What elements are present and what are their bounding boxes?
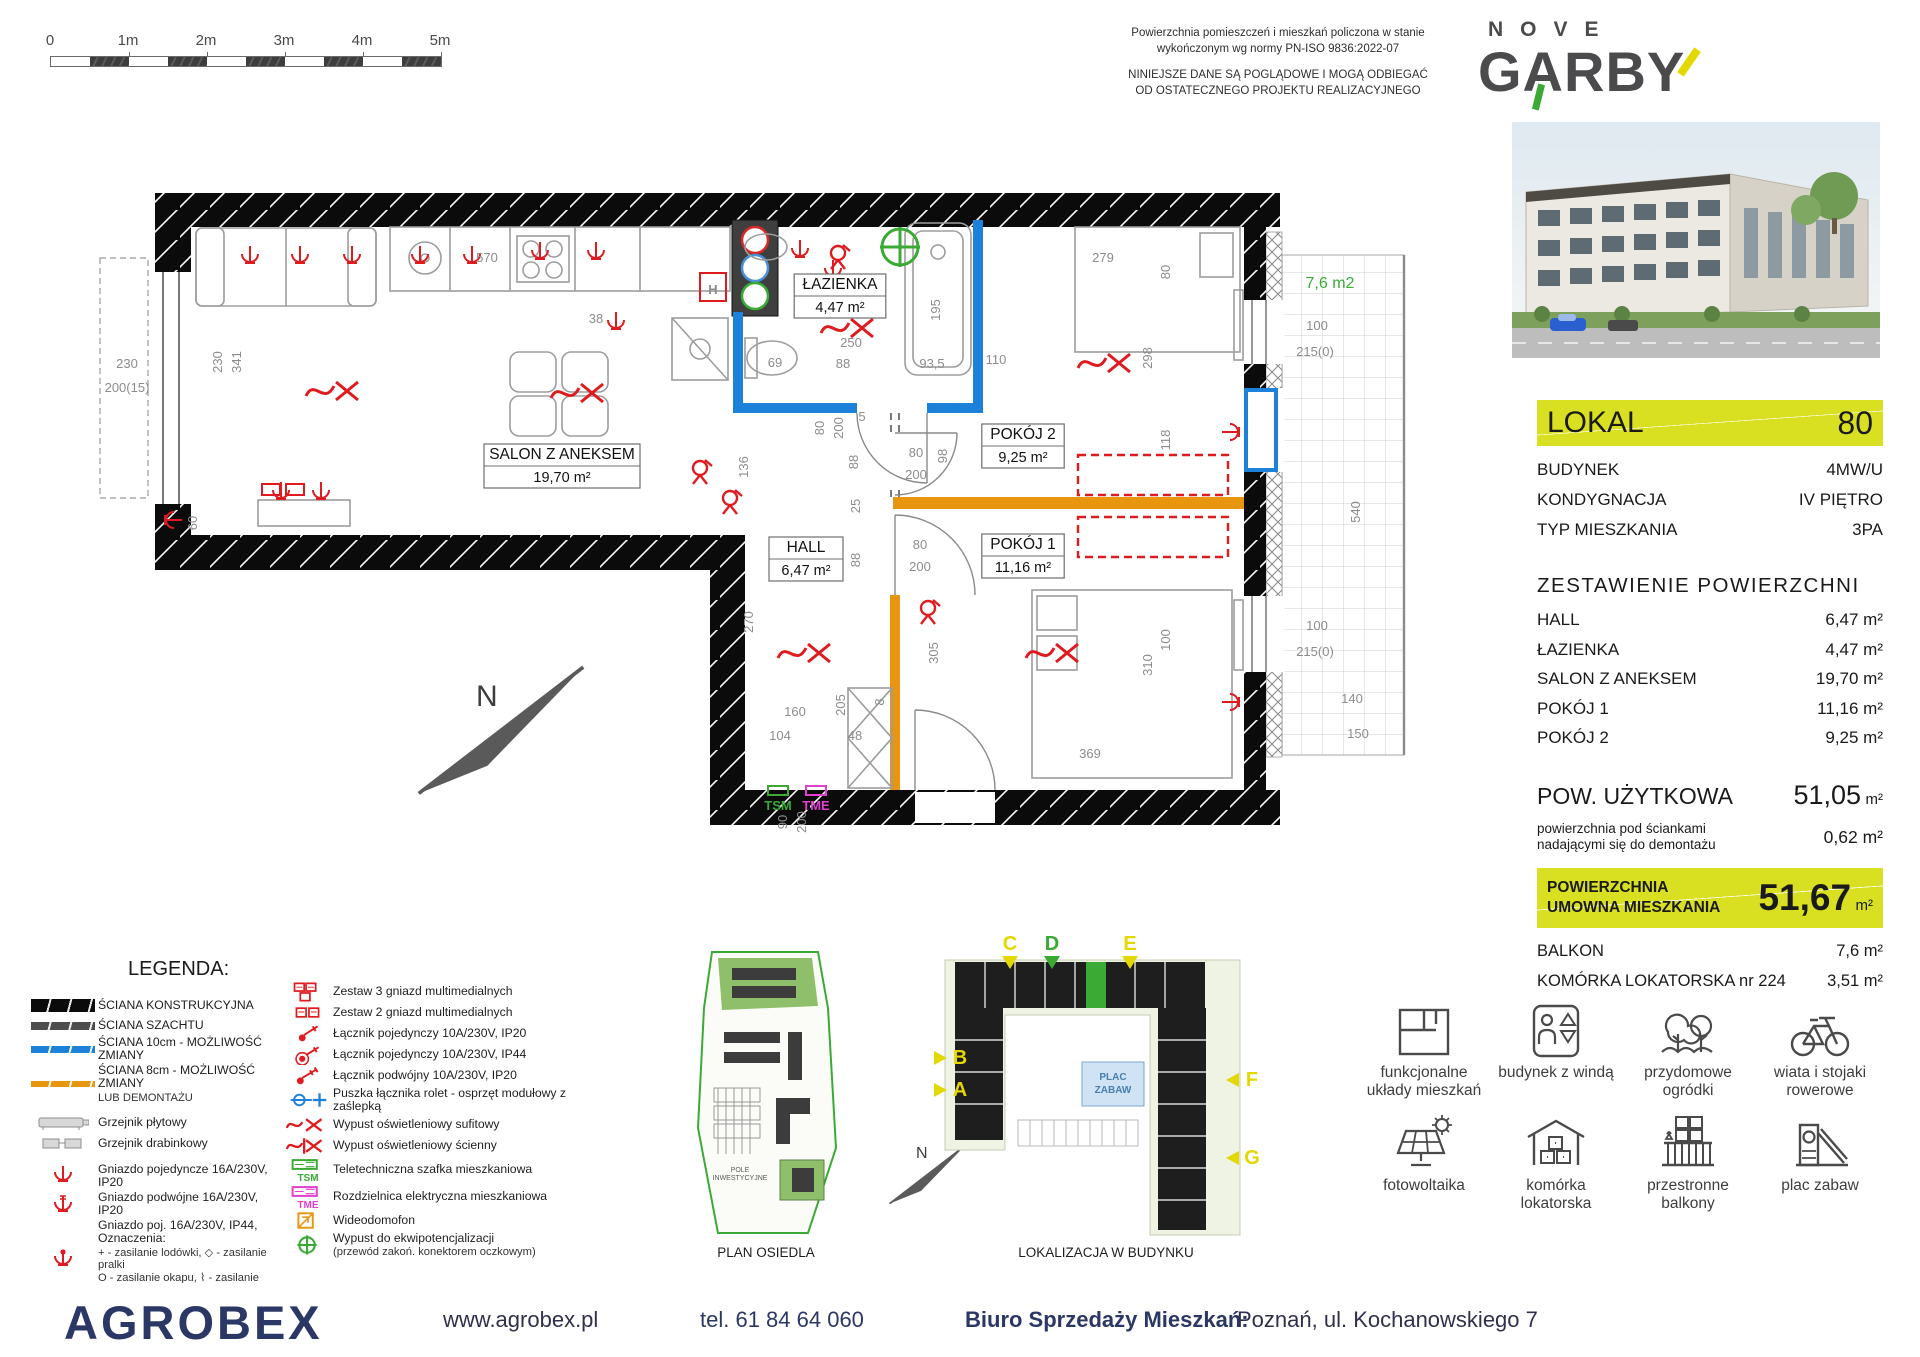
north-arrow: N [398,667,604,793]
scale-label: 2m [196,32,217,49]
scale-segment [246,57,285,66]
dimension-label: 270 [741,611,756,633]
building-map-label: LOKALIZACJA W BUDYNKU [930,1245,1282,1260]
footer-website[interactable]: www.agrobex.pl [443,1307,598,1333]
dimension-label: 93,5 [919,356,944,371]
unit-attribute-value: IV PIĘTRO [1799,490,1883,510]
wall-gray-icon [28,1022,98,1030]
legend-item-label: Łącznik podwójny 10A/230V, IP20 [333,1069,517,1082]
surface-row-label: HALL [1537,610,1580,630]
dimension-label: 88 [848,553,863,567]
legend-item-label: Gniazdo podwójne 16A/230V, IP20 [98,1191,283,1218]
scale-tick [363,52,364,57]
legend-item-label: Grzejnik płytowy [98,1116,187,1129]
plan-symbol-letter: H [708,282,717,297]
dimension-label: 195 [928,299,943,321]
extra-row-label: KOMÓRKA LOKATORSKA nr 224 [1537,972,1786,991]
marker-letter: B [953,1047,967,1069]
room-label: POKÓJ 29,25 m² [982,424,1064,468]
north-letter: N [916,1145,928,1162]
media-3-icon [283,982,333,1002]
legend-item: Puszka łącznika rolet - osprzęt modułowy… [283,1087,588,1114]
extra-row: KOMÓRKA LOKATORSKA nr 2243,51 m² [1537,972,1883,1002]
room-label: ŁAZIENKA4,47 m² [794,274,886,318]
legend-item: TMERozdzielnica elektryczna mieszkaniowa [283,1184,588,1210]
feature-storage: komórka lokatorska [1490,1113,1622,1214]
unit-attribute-label: KONDYGNACJA [1537,490,1666,510]
feature-label: wiata i stojaki rowerowe [1754,1064,1886,1101]
norm-disclaimer: Powierzchnia pomieszczeń i mieszkań poli… [1128,26,1428,99]
legend-item-label: Grzejnik drabinkowy [98,1137,208,1150]
scale-segment [207,57,246,66]
roller-box-icon [283,1090,333,1110]
surface-row-value: 11,16 m² [1817,699,1883,719]
legend-item: ŚCIANA 8cm - MOŻLIWOŚĆ ZMIANYLUB DEMONTA… [28,1064,283,1104]
surface-row-label: POKÓJ 1 [1537,699,1609,719]
room-name: HALL [787,539,826,556]
switch-single-44-icon [283,1045,333,1065]
legend-item: ŚCIANA SZACHTU [28,1016,283,1035]
dimension-label: 38 [589,311,603,326]
legend-item: Zestaw 2 gniazd multimedialnych [283,1003,588,1023]
feature-solar: fotowoltaika [1358,1113,1490,1214]
marker-letter: A [953,1079,967,1101]
dimension-label: 100 [1306,318,1328,333]
scale-label: 3m [274,32,295,49]
lokal-label: LOKAL [1547,406,1644,440]
dimension-label: 118 [1158,430,1173,451]
feature-floorplan: funkcjonalne układy mieszkań [1358,1000,1490,1101]
light-ceiling-icon [283,1115,333,1135]
dimension-label: 570 [476,250,498,265]
feature-grid: funkcjonalne układy mieszkańbudynek z wi… [1358,1000,1888,1213]
feature-label: plac zabaw [1754,1177,1886,1195]
balcony [1282,255,1404,755]
scale-segment [363,57,402,66]
brand-line1: NOVE [1478,18,1718,42]
surface-row-value: 9,25 m² [1825,728,1883,748]
unit-attribute-value: 3PA [1852,520,1883,540]
building-photo [1512,122,1880,358]
dimension-label: 200(15) [105,380,150,395]
dimension-label: 150 [1347,726,1369,741]
demountable-walls [890,497,1244,790]
dimension-label: 110 [986,352,1007,367]
surface-row-label: ŁAZIENKA [1537,640,1619,660]
legend-item-label: Wypust oświetleniowy sufitowy [333,1118,500,1131]
legend-item: Grzejnik płytowy [28,1113,283,1133]
unit-attribute-value: 4MW/U [1826,460,1883,480]
marker-letter: G [1244,1147,1260,1169]
surface-row-value: 4,47 m² [1825,640,1883,660]
legend-item: Gniazdo podwójne 16A/230V, IP20 [28,1191,283,1218]
building-location-map: PLACZABAW CDEBAFG LOKALIZACJA W BUDYNKU [930,930,1282,1260]
dimension-label: 160 [784,704,806,719]
wall-orange-icon [28,1081,98,1087]
dimension-label: 136 [736,456,751,478]
extra-row-value: 7,6 m² [1836,942,1883,961]
feature-label: komórka lokatorska [1490,1177,1622,1214]
unit-attribute: BUDYNEK4MW/U [1537,460,1883,490]
marker-letter: D [1045,933,1059,955]
room-name: ŁAZIENKA [803,276,879,293]
room-label: POKÓJ 111,16 m² [982,534,1064,578]
unit-attributes: BUDYNEK4MW/UKONDYGNACJAIV PIĘTROTYP MIES… [1537,460,1883,550]
extras-table: BALKON7,6 m²KOMÓRKA LOKATORSKA nr 2243,5… [1537,942,1883,1002]
room-label: HALL6,47 m² [769,537,843,581]
feature-playground: plac zabaw [1754,1113,1886,1214]
dimension-label: 90 [775,815,790,829]
dimension-label: 200 [909,559,931,574]
feature-label: budynek z windą [1490,1064,1622,1082]
dimension-label: 215(0) [1296,344,1334,359]
storage-icon [1524,1113,1588,1173]
scale-segment [129,57,168,66]
scale-segment [324,57,363,66]
surface-row: HALL6,47 m² [1537,610,1883,640]
legend-column-1: ŚCIANA KONSTRUKCYJNAŚCIANA SZACHTUŚCIANA… [28,996,283,1327]
dimension-label: 8 [872,698,887,705]
unit-attribute: KONDYGNACJAIV PIĘTRO [1537,490,1883,520]
dimension-label: 215(0) [1296,644,1334,659]
feature-label: fotowoltaika [1358,1177,1490,1195]
surface-row: ŁAZIENKA4,47 m² [1537,640,1883,670]
feature-balcony: przestronne balkony [1622,1113,1754,1214]
legend-item: Grzejnik drabinkowy [28,1134,283,1154]
intercom-icon [283,1211,333,1231]
footer-phone[interactable]: tel. 61 84 64 060 [700,1307,864,1333]
footer-office-address: Poznań, ul. Kochanowskiego 7 [1237,1307,1538,1333]
wall-blue-icon [28,1046,98,1053]
legend-item: Wideodomofon [283,1211,588,1231]
dimension-label: 140 [1341,691,1363,706]
legend-item: Łącznik pojedynczy 10A/230V, IP20 [283,1024,588,1044]
legend-item-label: Zestaw 3 gniazd multimedialnych [333,985,513,998]
brand-logo: NOVE GARBY [1478,18,1718,118]
legend-item: Gniazdo pojedyncze 16A/230V, IP20 [28,1163,283,1190]
scale-label: 1m [118,32,139,49]
scale-label: 4m [352,32,373,49]
legend-item-label: Puszka łącznika rolet - osprzęt modułowy… [333,1087,588,1114]
tsm-label: TSM [764,798,791,813]
dimension-label: 279 [1092,250,1114,265]
legend-item-label: ŚCIANA 10cm - MOŻLIWOŚĆ ZMIANY [98,1036,283,1063]
extra-row-label: BALKON [1537,942,1604,961]
radiator-ladder-icon [28,1134,98,1154]
legend-item-label: Wideodomofon [333,1214,415,1227]
marker-letter: E [1123,933,1136,955]
agrobex-logo: AGROBEX [64,1295,323,1350]
scale-segment [402,57,441,66]
equipotential-icon [283,1235,333,1255]
legend-item-label: Wypust do ekwipotencjalizacji(przewód za… [333,1232,536,1259]
dimension-label: 305 [926,642,941,664]
scale-segment [90,57,129,66]
surface-row-label: POKÓJ 2 [1537,728,1609,748]
demolition-note-row: powierzchnia pod ściankami nadającymi si… [1537,821,1883,855]
dimension-label: 98 [935,449,950,463]
legend-item-label: Łącznik pojedynczy 10A/230V, IP20 [333,1027,526,1040]
legend-item-label: ŚCIANA SZACHTU [98,1019,204,1032]
switch-double-icon [283,1066,333,1086]
legend-item-label: ŚCIANA 8cm - MOŻLIWOŚĆ ZMIANYLUB DEMONTA… [98,1064,283,1104]
feature-garden: przydomowe ogródki [1622,1000,1754,1101]
legend-item: ŚCIANA KONSTRUKCYJNA [28,996,283,1015]
tme-box-icon: TME [283,1184,333,1210]
feature-elevator: budynek z windą [1490,1000,1622,1101]
balcony-icon [1656,1113,1720,1173]
media-2-icon [283,1003,333,1023]
room-area: 6,47 m² [781,563,830,579]
scale-segment [285,57,324,66]
surface-row-value: 6,47 m² [1825,610,1883,630]
dimension-label: 200 [831,417,846,439]
legend-item-label: Gniazdo pojedyncze 16A/230V, IP20 [98,1163,283,1190]
legend-column-2: Zestaw 3 gniazd multimedialnychZestaw 2 … [283,982,588,1260]
dimension-label: 25 [848,499,863,513]
tsm-box-icon: TSM [283,1157,333,1183]
unit-attribute-label: TYP MIESZKANIA [1537,520,1677,540]
room-area: 9,25 m² [998,450,1047,466]
wall-black-icon [28,999,98,1012]
scale-tick [129,52,130,57]
feature-bike: wiata i stojaki rowerowe [1754,1000,1886,1101]
dimension-label: 298 [1140,347,1155,369]
room-area: 11,16 m² [995,560,1051,576]
highlighted-unit [1086,962,1106,1008]
legend-item-label: ŚCIANA KONSTRUKCYJNA [98,999,254,1012]
dimension-label: 88 [846,455,861,469]
radiator-panel-icon [28,1113,98,1133]
room-name: POKÓJ 2 [990,426,1055,443]
scale-bar: 01m2m3m4m5m [50,32,442,74]
dimension-label: 200 [794,811,809,833]
floorplan-icon [1392,1000,1456,1060]
feature-label: przydomowe ogródki [1622,1064,1754,1101]
surface-row-value: 19,70 m² [1816,669,1883,689]
elevator-icon [1524,1000,1588,1060]
dimension-label: 341 [229,351,244,373]
dimension-label: 200 [905,467,927,482]
unit-attribute: TYP MIESZKANIA3PA [1537,520,1883,550]
dimension-label: 80 [909,445,923,460]
socket-single-icon [28,1166,98,1186]
legend-item: Wypust oświetleniowy sufitowy [283,1115,588,1135]
extra-row-value: 3,51 m² [1827,972,1883,991]
extra-row: BALKON7,6 m² [1537,942,1883,972]
solar-icon [1392,1113,1456,1173]
scale-tick [285,52,286,57]
surfaces-title: ZESTAWIENIE POWIERZCHNI [1537,574,1883,598]
legend-item: Wypust do ekwipotencjalizacji(przewód za… [283,1232,588,1259]
footer-office-label: Biuro Sprzedaży Mieszkań: [965,1307,1249,1333]
partition-dashed [891,413,899,497]
surface-row: SALON Z ANEKSEM19,70 m² [1537,669,1883,699]
dimension-label: 369 [1079,746,1101,761]
scale-segment [51,57,90,66]
north-letter: N [476,680,498,713]
lokal-number: 80 [1837,405,1873,442]
room-name: SALON Z ANEKSEM [489,446,635,463]
legend-item: ŚCIANA 10cm - MOŻLIWOŚĆ ZMIANY [28,1036,283,1063]
dimension-label: 230 [116,356,138,371]
contract-area-band: POWIERZCHNIA UMOWNA MIESZKANIA 51,67 m² [1537,868,1883,928]
switch-single-icon [283,1024,333,1044]
room-area: 4,47 m² [815,300,864,316]
feature-label: funkcjonalne układy mieszkań [1358,1064,1490,1101]
legend-item: TSMTeletechniczna szafka mieszkaniowa [283,1157,588,1183]
legend: LEGENDA: ŚCIANA KONSTRUKCYJNAŚCIANA SZAC… [28,950,588,1255]
socket-ip44-icon [28,1248,98,1268]
dimension-label: 60 [185,516,200,530]
dimension-label: 80 [913,537,927,552]
dimension-label: 80 [1158,265,1173,279]
legend-item-label: Zestaw 2 gniazd multimedialnych [333,1006,513,1019]
dimension-label: 100 [1158,629,1173,651]
socket-double-icon [28,1194,98,1214]
footer: AGROBEX www.agrobex.pl tel. 61 84 64 060… [0,1283,1920,1357]
dimension-label: 5 [858,409,865,424]
garden-icon [1656,1000,1720,1060]
dimension-label: 310 [1140,654,1155,676]
dimension-label: 100 [1306,618,1328,633]
room-label: SALON Z ANEKSEM19,70 m² [484,444,640,488]
marker-letter: F [1246,1069,1258,1091]
legend-item-label: Wypust oświetleniowy ścienny [333,1139,497,1152]
legend-item: Łącznik podwójny 10A/230V, IP20 [283,1066,588,1086]
unit-attribute-label: BUDYNEK [1537,460,1619,480]
surfaces-table: HALL6,47 m²ŁAZIENKA4,47 m²SALON Z ANEKSE… [1537,610,1883,758]
feature-label: przestronne balkony [1622,1177,1754,1214]
norm-note: Powierzchnia pomieszczeń i mieszkań poli… [1128,26,1428,57]
light-wall-icon [283,1136,333,1156]
scale-tick [441,52,442,57]
surface-row-label: SALON Z ANEKSEM [1537,669,1697,689]
legend-item: Łącznik pojedynczy 10A/230V, IP44 [283,1045,588,1065]
electrical-symbols [165,227,1239,795]
dimension-label: 540 [1348,501,1363,523]
tme-label: TME [802,798,830,813]
flyer-page: N N 57027980230341230200(15)603869250889… [0,0,1920,1357]
dimension-label: 88 [836,356,850,371]
playground-icon [1788,1113,1852,1173]
balcony-area-label: 7,6 m2 [1306,275,1355,292]
surface-row: POKÓJ 111,16 m² [1537,699,1883,729]
scale-segment [168,57,207,66]
legend-title: LEGENDA: [128,958,229,981]
estate-map-label: PLAN OSIEDLA [688,1245,844,1260]
scale-label: 0 [46,32,54,49]
legend-item: Wypust oświetleniowy ścienny [283,1136,588,1156]
dimension-label: 48 [848,728,862,743]
unit-panel: LOKAL 80 BUDYNEK4MW/UKONDYGNACJAIV PIĘTR… [1537,400,1883,1002]
scale-tick [207,52,208,57]
legend-item-label: Teletechniczna szafka mieszkaniowa [333,1163,532,1176]
usable-area-row: POW. UŻYTKOWA 51,05 m² [1537,780,1883,811]
room-name: POKÓJ 1 [990,536,1055,553]
dimension-label: 80 [812,421,827,435]
estate-plan-map: POLEINWESTYCYJNE PLAN OSIEDLA [688,948,844,1260]
dimension-label: 69 [768,355,782,370]
legend-item: Zestaw 3 gniazd multimedialnych [283,982,588,1002]
marker-letter: C [1003,933,1017,955]
dimension-label: 205 [833,694,848,716]
dimension-label: 250 [840,335,862,350]
lokal-band: LOKAL 80 [1537,400,1883,446]
surface-row: POKÓJ 29,25 m² [1537,728,1883,758]
legend-item-label: Rozdzielnica elektryczna mieszkaniowa [333,1190,547,1203]
dimension-label: 230 [210,351,225,373]
room-area: 19,70 m² [533,470,590,486]
legend-item-label: Łącznik pojedynczy 10A/230V, IP44 [333,1048,526,1061]
draft-disclaimer: NINIEJSZE DANE SĄ POGLĄDOWE I MOGĄ ODBIE… [1128,68,1428,99]
equipotential-outlet [880,227,920,267]
dimension-label: 104 [769,728,791,743]
bike-icon [1788,1000,1852,1060]
scale-label: 5m [430,32,451,49]
